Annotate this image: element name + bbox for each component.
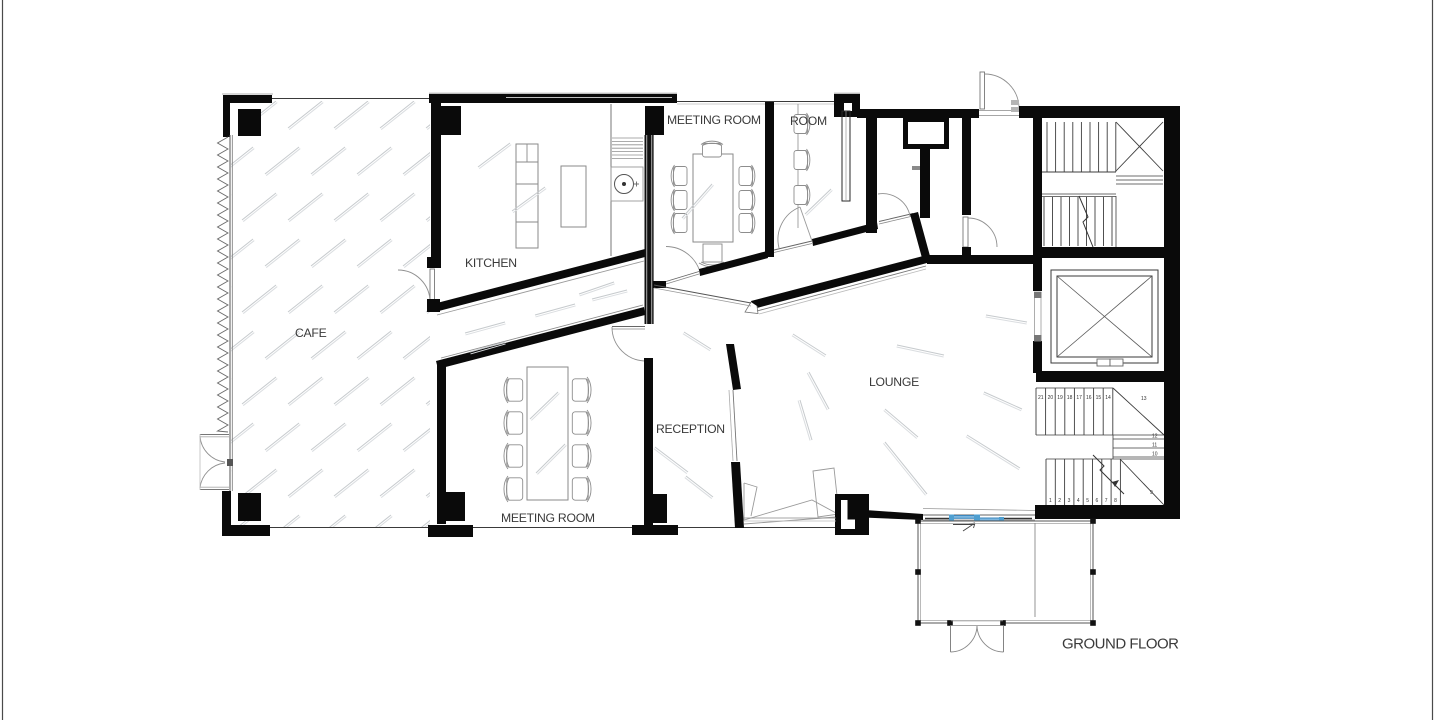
svg-text:12: 12 [1152, 434, 1158, 440]
svg-text:6: 6 [1096, 498, 1099, 504]
svg-text:16: 16 [1086, 395, 1092, 401]
svg-text:4: 4 [1077, 498, 1080, 504]
svg-text:MEETING ROOM: MEETING ROOM [501, 511, 595, 525]
svg-text:17: 17 [1076, 395, 1082, 401]
svg-text:13: 13 [1141, 396, 1147, 402]
svg-text:CAFE: CAFE [295, 326, 327, 340]
svg-text:1: 1 [1049, 498, 1052, 504]
svg-text:GROUND FLOOR: GROUND FLOOR [1062, 636, 1179, 653]
svg-text:20: 20 [1048, 395, 1054, 401]
svg-text:3: 3 [1068, 498, 1071, 504]
svg-text:14: 14 [1105, 395, 1111, 401]
svg-text:21: 21 [1038, 395, 1044, 401]
svg-text:LOUNGE: LOUNGE [869, 375, 919, 389]
svg-text:7: 7 [1105, 498, 1108, 504]
svg-text:19: 19 [1057, 395, 1063, 401]
svg-text:ROOM: ROOM [790, 114, 827, 128]
svg-text:15: 15 [1096, 395, 1102, 401]
svg-text:MEETING ROOM: MEETING ROOM [667, 113, 761, 127]
svg-text:8: 8 [1114, 498, 1117, 504]
svg-text:5: 5 [1086, 498, 1089, 504]
svg-text:11: 11 [1152, 443, 1157, 449]
svg-text:10: 10 [1152, 452, 1158, 458]
svg-text:2: 2 [1058, 498, 1061, 504]
svg-text:18: 18 [1067, 395, 1073, 401]
svg-text:9: 9 [1150, 490, 1153, 496]
svg-text:RECEPTION: RECEPTION [656, 422, 725, 436]
svg-text:KITCHEN: KITCHEN [465, 256, 517, 270]
